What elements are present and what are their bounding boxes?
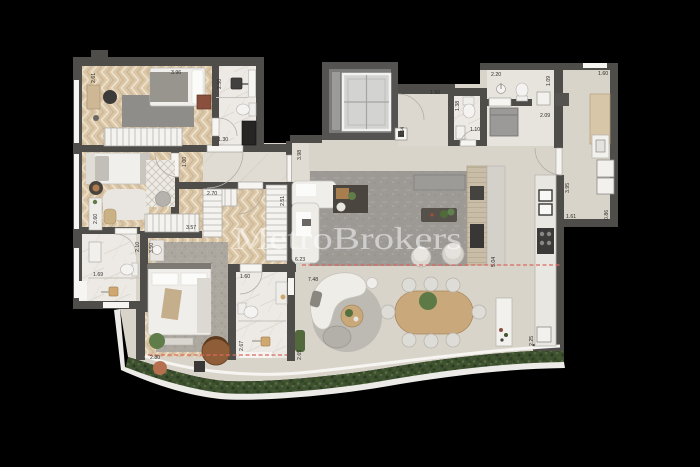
svg-text:6.23: 6.23: [295, 257, 305, 263]
svg-text:0.86: 0.86: [604, 210, 610, 220]
svg-text:2.25: 2.25: [529, 336, 535, 346]
svg-text:3.96: 3.96: [171, 70, 181, 76]
svg-text:1.69: 1.69: [93, 272, 103, 278]
svg-text:3.98: 3.98: [297, 150, 303, 160]
svg-text:2.70: 2.70: [207, 191, 217, 197]
svg-text:2.80: 2.80: [150, 355, 160, 361]
svg-text:2.50: 2.50: [217, 79, 223, 89]
svg-text:3.95: 3.95: [565, 183, 571, 193]
svg-text:1.54: 1.54: [400, 127, 406, 137]
svg-text:3.50: 3.50: [149, 243, 155, 253]
svg-text:2.20: 2.20: [491, 72, 501, 78]
svg-text:1.10: 1.10: [470, 127, 480, 133]
svg-text:2.69: 2.69: [297, 350, 303, 360]
svg-text:1.30: 1.30: [218, 137, 228, 143]
svg-text:2.60: 2.60: [93, 214, 99, 224]
svg-text:2.67: 2.67: [239, 341, 245, 351]
svg-text:2.09: 2.09: [540, 113, 550, 119]
svg-text:1.60: 1.60: [240, 274, 250, 280]
svg-text:3.57: 3.57: [186, 225, 196, 231]
svg-text:1.60: 1.60: [598, 71, 608, 77]
svg-text:1.61: 1.61: [566, 214, 576, 220]
svg-text:1.00: 1.00: [182, 157, 188, 167]
svg-text:1.09: 1.09: [546, 76, 552, 86]
svg-text:MetroBrokers: MetroBrokers: [233, 220, 462, 256]
svg-text:1.50: 1.50: [430, 90, 440, 96]
svg-text:7.48: 7.48: [308, 277, 318, 283]
svg-text:2.51: 2.51: [280, 196, 286, 206]
svg-text:2.61: 2.61: [91, 73, 97, 83]
svg-text:1.38: 1.38: [455, 101, 461, 111]
svg-text:5.04: 5.04: [491, 257, 497, 267]
svg-text:2.10: 2.10: [135, 242, 141, 252]
